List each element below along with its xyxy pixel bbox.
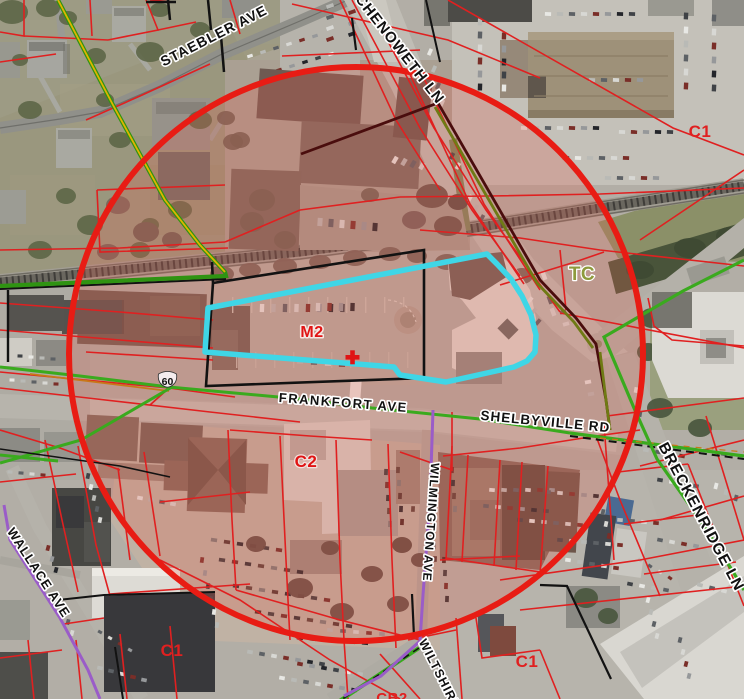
svg-text:TC: TC [569, 264, 595, 285]
svg-text:C1: C1 [689, 122, 712, 141]
svg-text:C1: C1 [161, 641, 184, 660]
svg-text:C2: C2 [295, 452, 318, 471]
svg-text:60: 60 [162, 376, 174, 388]
svg-text:CB2: CB2 [376, 690, 408, 699]
svg-text:M2: M2 [300, 324, 323, 341]
svg-text:C1: C1 [516, 652, 539, 671]
